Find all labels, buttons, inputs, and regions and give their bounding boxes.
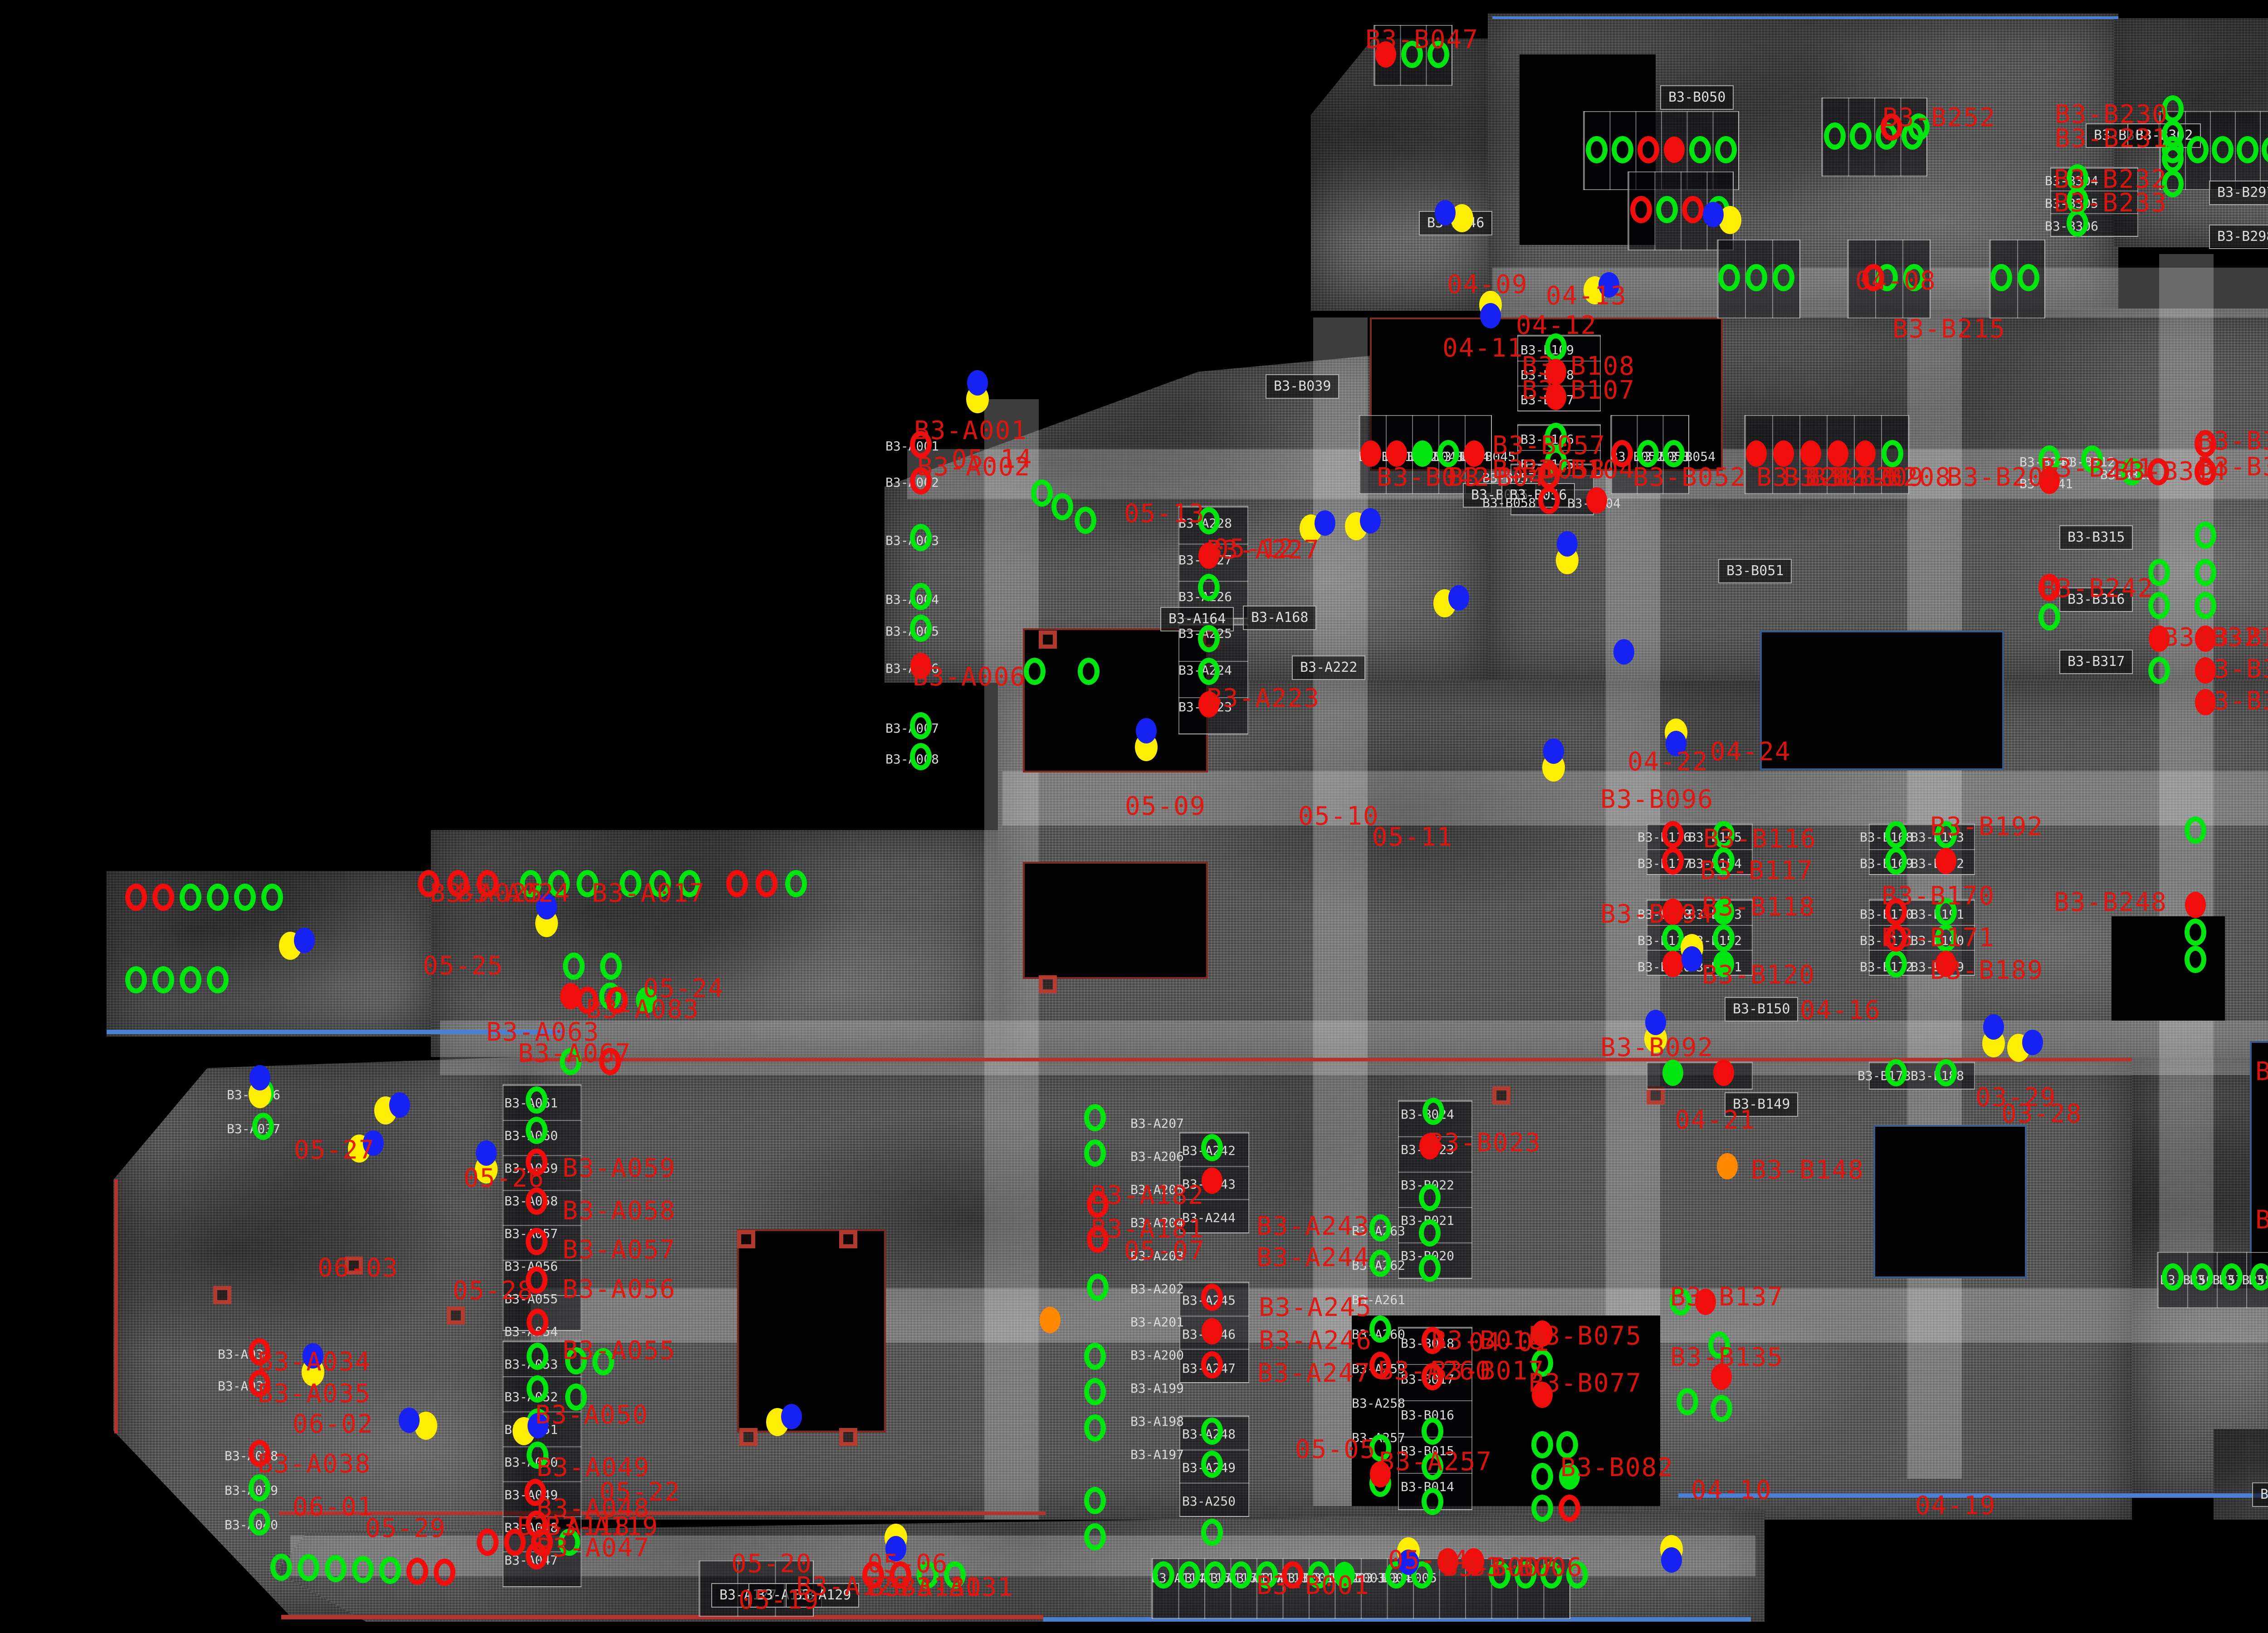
status-marker-green-ring[interactable] xyxy=(2191,1263,2213,1291)
unscanned-void xyxy=(2112,916,2225,1021)
scan-label: 05-05 xyxy=(1295,1437,1376,1462)
scan-label: 04-10 xyxy=(1691,1478,1772,1503)
status-marker-green-ring[interactable] xyxy=(261,884,283,911)
status-marker-green-ring[interactable] xyxy=(1885,821,1907,848)
status-marker-green-ring[interactable] xyxy=(2195,559,2216,586)
bay-issue-label: B3-A049 xyxy=(537,1455,650,1481)
status-marker-green-ring[interactable] xyxy=(1084,1104,1106,1131)
bay-issue-label: B3-B006 xyxy=(1470,1555,1583,1580)
status-marker-green-ring[interactable] xyxy=(249,1508,270,1535)
status-marker-green-ring[interactable] xyxy=(1422,1488,1443,1515)
scan-blue-icon xyxy=(1543,738,1564,764)
scan-label: 04-13 xyxy=(1546,284,1627,309)
bay-issue-label: B3-B018 xyxy=(1431,1328,1545,1354)
status-marker-green-ring[interactable] xyxy=(1711,1395,1732,1422)
status-marker-green-ring[interactable] xyxy=(1369,1214,1391,1242)
bay-issue-label: B3-B092 xyxy=(1600,1035,1714,1061)
scan-label: 04-19 xyxy=(1915,1493,1996,1519)
status-marker-green-ring[interactable] xyxy=(1715,136,1737,163)
status-marker-green-ring[interactable] xyxy=(325,1555,347,1582)
bay-placard: B3-A168 xyxy=(1243,606,1316,630)
status-marker-green-ring[interactable] xyxy=(1656,196,1678,223)
bay-issue-label: B3-A223 xyxy=(1207,686,1320,711)
bay-issue-label: B3-A059 xyxy=(562,1156,676,1181)
scan-blue-icon xyxy=(1435,200,1456,225)
status-marker-green-ring[interactable] xyxy=(2187,136,2209,163)
bay-issue-label: B3-A057 xyxy=(562,1237,676,1263)
bay-issue-label: B3-B023 xyxy=(1428,1130,1541,1156)
scan-label: 06-02 xyxy=(293,1412,374,1437)
status-marker-green-ring[interactable] xyxy=(2195,592,2216,619)
bay-placard: B3-B051 xyxy=(1718,559,1792,583)
status-marker-green-ring[interactable] xyxy=(207,966,229,993)
status-marker-red-filled[interactable] xyxy=(560,983,581,1009)
bay-issue-label: B3-B137 xyxy=(1670,1285,1784,1310)
status-marker-green-ring[interactable] xyxy=(1051,493,1073,520)
scan-blue-icon xyxy=(389,1092,410,1118)
status-marker-green-ring[interactable] xyxy=(180,966,201,993)
status-marker-green-ring[interactable] xyxy=(180,884,201,911)
status-marker-green-ring[interactable] xyxy=(2185,919,2206,946)
status-marker-green-ring[interactable] xyxy=(910,615,932,642)
bay-id: B3-B058 xyxy=(1482,497,1536,509)
bay-issue-label: B3-B333 xyxy=(2198,625,2268,650)
bay-issue-label: B3-A038 xyxy=(258,1452,371,1477)
curb-line xyxy=(1492,16,2118,19)
bay-id: B3-A201 xyxy=(1130,1316,1184,1329)
status-marker-green-ring[interactable] xyxy=(1153,1561,1174,1589)
status-marker-green-ring[interactable] xyxy=(2195,522,2216,549)
status-marker-green-ring[interactable] xyxy=(2148,657,2170,684)
status-marker-green-ring[interactable] xyxy=(1201,1519,1223,1546)
status-marker-red-ring[interactable] xyxy=(526,1228,547,1255)
status-marker-green-ring[interactable] xyxy=(1084,1343,1106,1370)
status-marker-green-ring[interactable] xyxy=(526,1117,547,1144)
scan-label: 04-21 xyxy=(1675,1108,1756,1133)
bay-issue-label: B3-B258 xyxy=(2255,1059,2268,1085)
scan-label: 03-28 xyxy=(2001,1101,2082,1127)
status-marker-orange-filled[interactable] xyxy=(1717,1153,1738,1179)
bay-id: B3-A258 xyxy=(1352,1397,1405,1410)
status-marker-green-ring[interactable] xyxy=(1031,479,1053,507)
status-marker-green-ring[interactable] xyxy=(1531,1431,1553,1458)
bay-issue-label: B3-B096 xyxy=(1600,787,1714,812)
bay-issue-label: B3-A257 xyxy=(1379,1449,1492,1475)
status-marker-green-ring[interactable] xyxy=(1713,924,1735,952)
scan-label: 05-27 xyxy=(294,1138,375,1163)
bay-issue-label: B3-A247 xyxy=(1257,1361,1371,1386)
status-marker-green-ring[interactable] xyxy=(298,1554,319,1581)
bay-issue-label: B3-A227 xyxy=(1207,538,1320,563)
bay-issue-label: B3-A182 xyxy=(1091,1183,1204,1208)
status-marker-green-ring[interactable] xyxy=(1075,507,1096,534)
status-marker-green-ring[interactable] xyxy=(1369,1315,1391,1343)
scan-label: 05-13 xyxy=(1124,501,1205,527)
status-marker-green-ring[interactable] xyxy=(1078,658,1100,685)
scan-blue-icon xyxy=(399,1408,420,1433)
status-marker-red-ring[interactable] xyxy=(1637,136,1659,163)
column-icon xyxy=(739,1428,758,1446)
bay-id: B3-A250 xyxy=(1182,1495,1236,1508)
column-icon xyxy=(1039,975,1057,993)
status-marker-red-filled[interactable] xyxy=(1586,487,1607,513)
status-marker-green-ring[interactable] xyxy=(352,1556,374,1583)
status-marker-green-ring[interactable] xyxy=(527,1375,548,1403)
bay-placard: B3-B181 xyxy=(2252,1482,2268,1507)
bay-issue-label: B3-A001 xyxy=(914,418,1027,444)
scan-label: 04-22 xyxy=(1628,749,1709,775)
scan-blue-icon xyxy=(1315,510,1335,536)
status-marker-green-ring[interactable] xyxy=(1084,1139,1106,1167)
status-marker-green-ring[interactable] xyxy=(1198,625,1220,652)
scan-label: 04-09 xyxy=(1447,272,1528,298)
column-icon xyxy=(1492,1086,1510,1105)
scan-blue-icon xyxy=(294,928,315,953)
scan-label: 04-12 xyxy=(1516,313,1597,338)
bay-issue-label: B3-B120 xyxy=(1702,963,1815,988)
status-marker-green-ring[interactable] xyxy=(379,1557,401,1584)
bay-issue-label: B3-B148 xyxy=(1751,1158,1864,1183)
status-marker-green-ring[interactable] xyxy=(207,884,229,911)
bay-issue-label: B3-A244 xyxy=(1256,1245,1370,1271)
bay-issue-label: B3-A006 xyxy=(913,665,1026,690)
status-marker-red-ring[interactable] xyxy=(477,1529,499,1556)
bay-issue-label: B3-B171 xyxy=(1882,925,1995,951)
bay-issue-label: B3-B116 xyxy=(1703,826,1817,852)
bay-placard: B3-B150 xyxy=(1725,997,1798,1022)
status-marker-green-ring[interactable] xyxy=(1885,847,1907,875)
bay-issue-label: B3-A119 xyxy=(545,1514,659,1540)
status-marker-green-ring[interactable] xyxy=(2185,946,2206,973)
curb-line xyxy=(114,1179,118,1433)
status-marker-green-ring[interactable] xyxy=(1531,1495,1553,1522)
column-icon xyxy=(839,1428,857,1446)
scan-blue-icon xyxy=(1480,303,1501,328)
bay-id: B3-A207 xyxy=(1130,1117,1184,1130)
bay-issue-label: B3-A017 xyxy=(592,881,705,906)
status-marker-green-ring[interactable] xyxy=(1824,122,1846,150)
status-marker-red-filled[interactable] xyxy=(2185,892,2206,918)
scan-blue-icon xyxy=(1448,585,1469,611)
scan-label: 04-08 xyxy=(1855,269,1936,294)
status-marker-red-ring[interactable] xyxy=(1630,196,1652,223)
status-marker-green-ring[interactable] xyxy=(2162,1263,2184,1291)
scan-blue-icon xyxy=(1360,508,1381,533)
bay-id: B3-A199 xyxy=(1130,1382,1184,1395)
bay-issue-label: B3-B052 xyxy=(1633,465,1746,490)
bay-issue-label: B3-A067 xyxy=(518,1041,631,1066)
bay-issue-label: B3-B017 xyxy=(1431,1359,1545,1384)
bay-issue-label: B3-B242 xyxy=(2040,576,2154,601)
status-marker-red-ring[interactable] xyxy=(1662,821,1684,848)
status-marker-green-ring[interactable] xyxy=(2038,603,2060,631)
bay-issue-label: B3-B118 xyxy=(1702,895,1815,920)
column-icon xyxy=(447,1306,465,1325)
scan-label: 05-28 xyxy=(453,1278,534,1304)
status-marker-green-ring[interactable] xyxy=(563,953,585,980)
bay-issue-label: B3-B189 xyxy=(1930,958,2043,983)
status-marker-green-ring[interactable] xyxy=(1612,136,1633,163)
status-marker-green-ring[interactable] xyxy=(910,524,932,551)
status-marker-green-ring[interactable] xyxy=(2212,136,2234,163)
unscanned-void xyxy=(1760,631,2004,770)
status-marker-green-ring[interactable] xyxy=(910,583,932,610)
scan-label: 05-25 xyxy=(423,953,504,979)
bay-issue-label: B3-B001 xyxy=(1256,1573,1370,1599)
status-marker-red-filled[interactable] xyxy=(1936,848,1956,874)
scan-blue-icon xyxy=(1983,1014,2004,1040)
status-marker-red-filled[interactable] xyxy=(1713,1060,1734,1086)
scan-blue-icon xyxy=(781,1404,802,1429)
unscanned-void xyxy=(1023,862,1208,979)
status-marker-green-ring[interactable] xyxy=(1084,1487,1106,1514)
scan-blue-icon xyxy=(249,1065,270,1090)
status-marker-green-ring[interactable] xyxy=(1850,122,1872,150)
scan-blue-icon xyxy=(476,1140,497,1166)
bay-issue-label: B3-B215 xyxy=(1892,317,2006,342)
scan-label: 05-29 xyxy=(365,1516,446,1541)
status-marker-orange-filled[interactable] xyxy=(1040,1307,1061,1333)
column-icon xyxy=(737,1230,755,1248)
bay-issue-label: B3-A055 xyxy=(562,1338,676,1364)
status-marker-red-ring[interactable] xyxy=(125,884,147,911)
bay-issue-label: B3-A024 xyxy=(457,881,571,906)
unscanned-void xyxy=(1873,1125,2027,1278)
bay-placard: B3-B317 xyxy=(2059,650,2133,674)
status-marker-green-ring[interactable] xyxy=(1990,264,2012,291)
status-marker-red-ring[interactable] xyxy=(152,884,174,911)
status-marker-green-ring[interactable] xyxy=(152,966,174,993)
status-marker-green-ring[interactable] xyxy=(1422,1418,1443,1445)
bay-issue-label: B3-B334 xyxy=(2198,657,2268,682)
bay-issue-label: B3-A246 xyxy=(1259,1328,1372,1354)
status-marker-green-ring[interactable] xyxy=(1531,1463,1553,1490)
status-marker-green-ring[interactable] xyxy=(1201,1134,1223,1161)
bay-issue-label: B3-B135 xyxy=(1670,1345,1784,1370)
status-marker-green-ring[interactable] xyxy=(125,966,147,993)
status-marker-red-filled[interactable] xyxy=(1664,137,1685,163)
bay-issue-label: B3-B082 xyxy=(1560,1455,1674,1481)
status-marker-red-ring[interactable] xyxy=(406,1558,428,1585)
bay-placard: B3-B050 xyxy=(1660,85,1734,110)
scan-blue-icon xyxy=(967,370,988,396)
status-marker-green-ring[interactable] xyxy=(910,743,932,770)
status-marker-green-ring[interactable] xyxy=(1369,1250,1391,1277)
bay-issue-label: B3-B077 xyxy=(1529,1371,1642,1396)
bay-issue-label: B3-A245 xyxy=(1259,1295,1372,1320)
bay-issue-label: B3-A058 xyxy=(562,1198,676,1224)
scan-blue-icon xyxy=(1136,718,1157,743)
scan-blue-icon xyxy=(1703,202,1724,227)
bay-id: B3-A200 xyxy=(1130,1349,1184,1362)
scan-label: 04-24 xyxy=(1710,739,1791,765)
bay-placard: B3-B315 xyxy=(2059,525,2133,550)
status-marker-red-ring[interactable] xyxy=(726,870,748,897)
bay-issue-label: B3-B208 xyxy=(1838,465,1951,490)
curb-line xyxy=(281,1615,1043,1619)
scan-label: 05-09 xyxy=(1125,794,1206,819)
bay-issue-label: B3-A083 xyxy=(586,997,699,1022)
status-marker-green-ring[interactable] xyxy=(1773,264,1794,291)
status-marker-green-ring[interactable] xyxy=(2221,1263,2243,1291)
scan-label: 05-11 xyxy=(1372,825,1453,850)
scan-label: 06-01 xyxy=(293,1495,374,1520)
status-marker-green-ring[interactable] xyxy=(526,1086,547,1114)
status-marker-green-ring[interactable] xyxy=(1198,658,1220,685)
status-marker-green-ring[interactable] xyxy=(1198,574,1220,601)
status-marker-red-filled[interactable] xyxy=(1662,951,1683,977)
bay-issue-label: B3-B192 xyxy=(1930,814,2043,840)
status-marker-red-filled[interactable] xyxy=(1202,1318,1222,1345)
bay-issue-label: B3-A243 xyxy=(1256,1214,1370,1239)
scan-blue-icon xyxy=(1661,1547,1682,1573)
scan-blue-icon xyxy=(1645,1010,1666,1035)
scan-blue-icon xyxy=(2022,1030,2043,1055)
bay-issue-label: B3-B170 xyxy=(1882,884,1995,909)
scan-label: 05-14 xyxy=(952,447,1033,472)
bay-id: B3-A197 xyxy=(1130,1448,1184,1461)
status-marker-green-ring[interactable] xyxy=(1419,1219,1441,1247)
status-marker-green-ring[interactable] xyxy=(1885,1059,1907,1086)
bay-id: B3-A206 xyxy=(1130,1150,1184,1163)
status-marker-red-ring[interactable] xyxy=(434,1559,455,1586)
bay-issue-label: B3-B107 xyxy=(1522,378,1635,403)
scan-blue-icon xyxy=(1557,531,1578,557)
column-icon xyxy=(213,1286,231,1304)
bay-issue-label: B3-B335 xyxy=(2198,689,2268,714)
bay-placard: B3-B298 xyxy=(2209,225,2268,249)
status-marker-red-ring[interactable] xyxy=(1682,196,1704,223)
bay-issue-label: B3-A050 xyxy=(535,1403,649,1428)
status-marker-green-ring[interactable] xyxy=(1718,264,1740,291)
status-marker-green-ring[interactable] xyxy=(600,953,622,980)
status-marker-green-ring[interactable] xyxy=(1084,1414,1106,1442)
status-marker-green-ring[interactable] xyxy=(1422,1098,1444,1125)
scan-label: 05-07 xyxy=(1124,1238,1205,1264)
status-marker-green-ring[interactable] xyxy=(234,884,256,911)
status-marker-green-ring[interactable] xyxy=(1201,1418,1223,1445)
scan-label: 05-10 xyxy=(1298,804,1379,829)
status-marker-red-ring[interactable] xyxy=(1662,847,1684,875)
status-marker-green-ring[interactable] xyxy=(1935,1059,1957,1086)
pointcloud-floorplan-viewport: B3-B297B3-B298B3-B303B3-B302B3-B050B3-B0… xyxy=(0,0,2268,1633)
status-marker-green-ring[interactable] xyxy=(270,1554,292,1581)
scan-label: 05-26 xyxy=(464,1166,545,1191)
status-marker-green-ring[interactable] xyxy=(1885,950,1907,978)
unscanned-void xyxy=(737,1229,886,1433)
bay-issue-label: B3-B047 xyxy=(1365,27,1479,53)
status-marker-green-ring[interactable] xyxy=(252,1113,274,1140)
bay-issue-label: B3-B329 xyxy=(2198,455,2268,480)
scan-label: 04-16 xyxy=(1800,998,1881,1023)
status-marker-green-ring[interactable] xyxy=(1677,1388,1698,1415)
bay-issue-label: B3-B117 xyxy=(1700,858,1813,884)
bay-placard: B3-B039 xyxy=(1266,374,1339,399)
scan-label: 04-11 xyxy=(1442,336,1524,361)
status-marker-green-ring[interactable] xyxy=(1204,1561,1226,1589)
status-marker-red-ring[interactable] xyxy=(1201,1284,1223,1311)
bay-issue-label: B3-A056 xyxy=(562,1277,676,1302)
scan-label: 06-03 xyxy=(318,1256,399,1281)
bay-issue-label: B3-B233 xyxy=(2054,191,2167,216)
status-marker-green-ring[interactable] xyxy=(785,870,807,897)
bay-placard: B3-A222 xyxy=(1292,655,1365,680)
status-marker-green-ring[interactable] xyxy=(527,1343,548,1370)
bay-issue-label: B3-B231 xyxy=(2055,126,2168,152)
status-marker-green-ring[interactable] xyxy=(1087,1274,1109,1301)
bay-issue-label: B3-A034 xyxy=(258,1349,371,1375)
status-marker-green-ring[interactable] xyxy=(2237,136,2258,163)
status-marker-green-ring[interactable] xyxy=(1586,136,1608,163)
status-marker-red-ring[interactable] xyxy=(527,1309,548,1336)
column-icon xyxy=(1039,631,1057,649)
status-marker-green-ring[interactable] xyxy=(1419,1255,1441,1282)
bay-id: B3-A202 xyxy=(1130,1283,1184,1296)
bay-issue-label: B3-A035 xyxy=(258,1381,371,1407)
status-marker-green-ring[interactable] xyxy=(1689,136,1711,163)
status-marker-green-ring[interactable] xyxy=(2185,816,2206,844)
bay-issue-label: B3-B248 xyxy=(2054,890,2167,915)
bay-issue-label: B3-B328 xyxy=(2198,429,2268,454)
status-marker-green-ring[interactable] xyxy=(1084,1378,1106,1405)
blue-dot-marker xyxy=(1613,639,1634,665)
status-marker-green-ring[interactable] xyxy=(1201,1451,1223,1478)
bay-issue-label: B3-B045 xyxy=(1448,465,1561,490)
status-marker-green-filled[interactable] xyxy=(1662,1060,1683,1086)
bay-id: B3-A198 xyxy=(1130,1415,1184,1428)
column-icon xyxy=(839,1230,857,1248)
status-marker-green-ring[interactable] xyxy=(1084,1523,1106,1550)
status-marker-red-filled[interactable] xyxy=(1202,1168,1222,1194)
status-marker-red-ring[interactable] xyxy=(1201,1351,1223,1379)
status-marker-green-ring[interactable] xyxy=(1230,1561,1252,1589)
status-marker-green-ring[interactable] xyxy=(1745,264,1767,291)
status-marker-red-ring[interactable] xyxy=(756,870,777,897)
status-marker-green-ring[interactable] xyxy=(910,712,932,739)
bay-issue-label: B3-B255 xyxy=(2255,1208,2268,1233)
bay-issue-label: B3-B252 xyxy=(1882,105,1996,131)
status-marker-green-ring[interactable] xyxy=(1419,1184,1441,1211)
status-marker-green-ring[interactable] xyxy=(2018,264,2039,291)
status-marker-green-ring[interactable] xyxy=(1024,658,1046,685)
status-marker-red-ring[interactable] xyxy=(1559,1495,1580,1522)
bay-issue-label: B3-B094 xyxy=(1600,902,1714,927)
status-marker-green-ring[interactable] xyxy=(1178,1561,1200,1589)
bay-placard: B3-B297 xyxy=(2209,181,2268,205)
scan-blue-icon xyxy=(1681,946,1702,972)
bay-issue-label: B3-A131 xyxy=(900,1575,1014,1600)
